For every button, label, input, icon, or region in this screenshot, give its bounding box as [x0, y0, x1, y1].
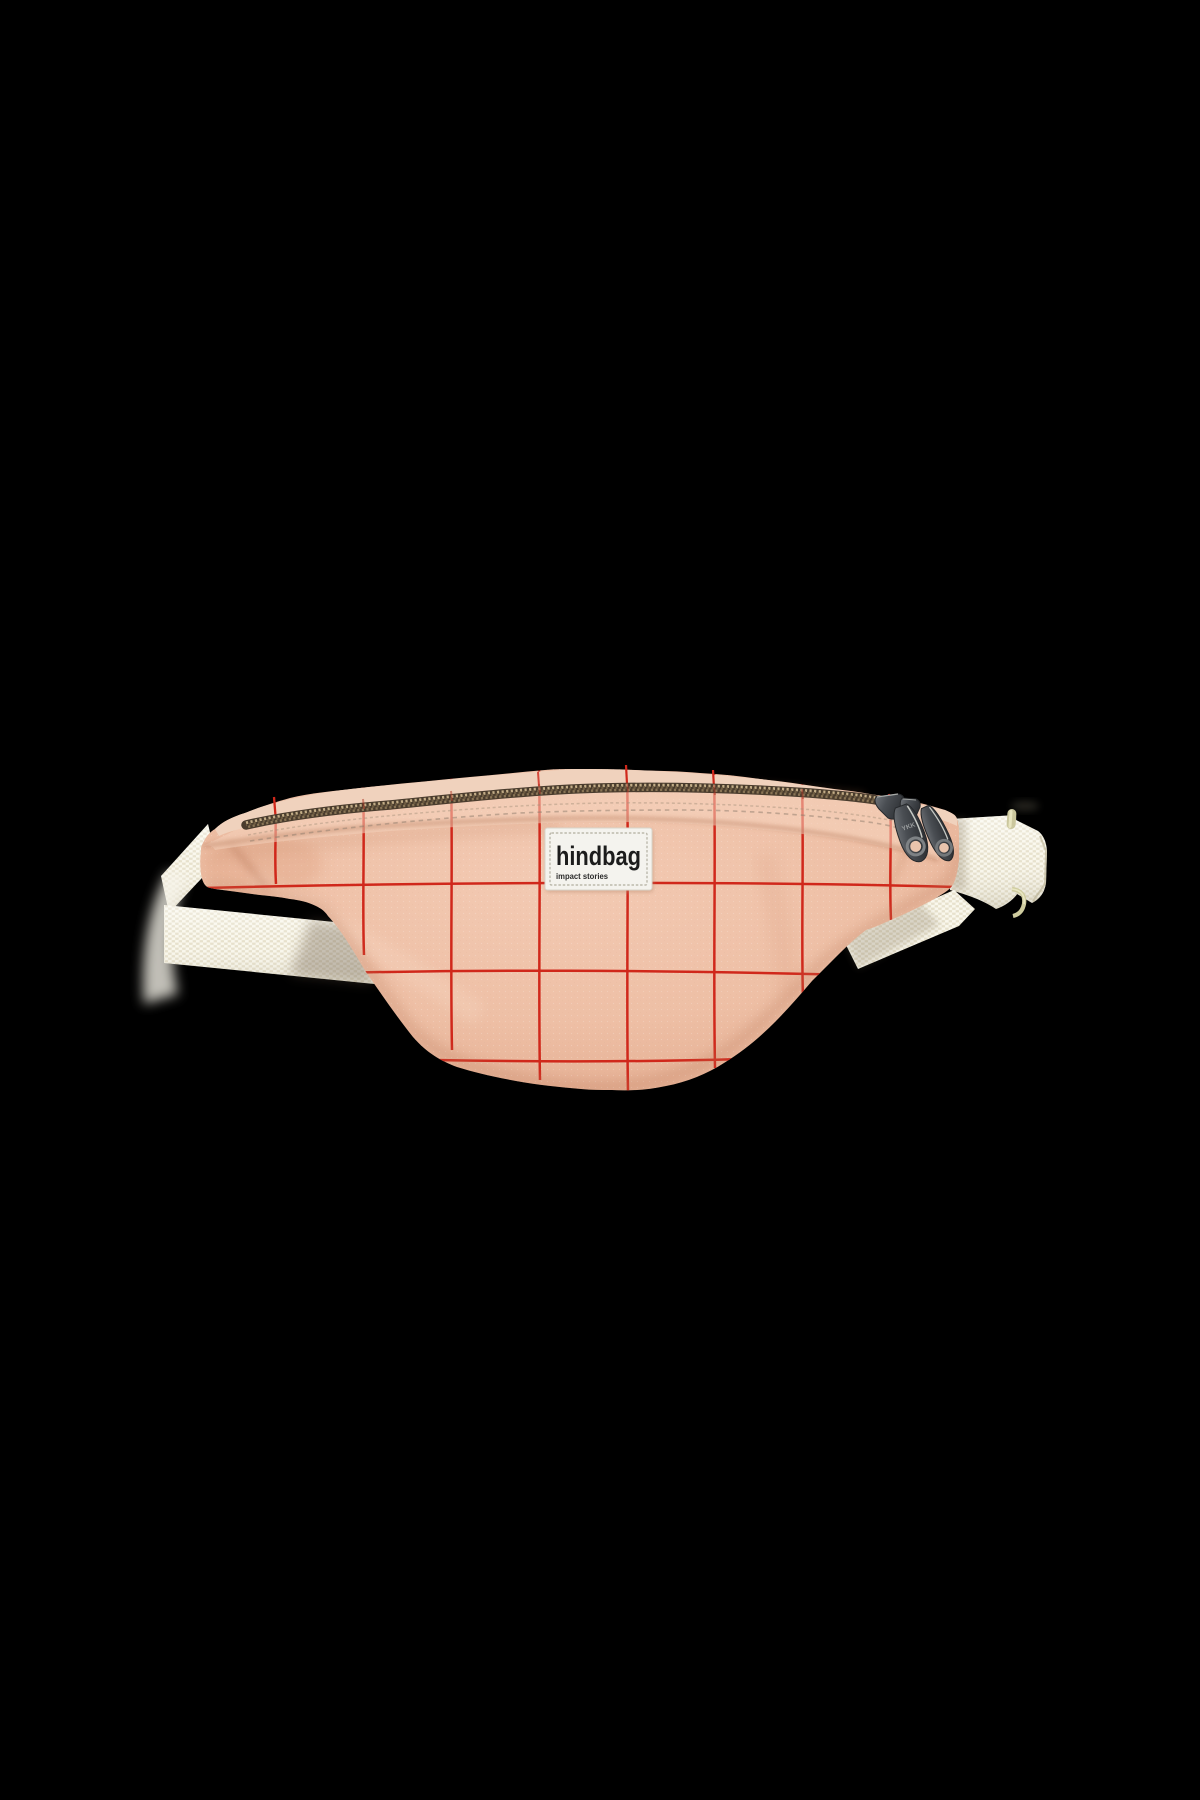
svg-text:hindbag: hindbag [556, 841, 641, 871]
svg-text:impact stories: impact stories [556, 872, 609, 881]
